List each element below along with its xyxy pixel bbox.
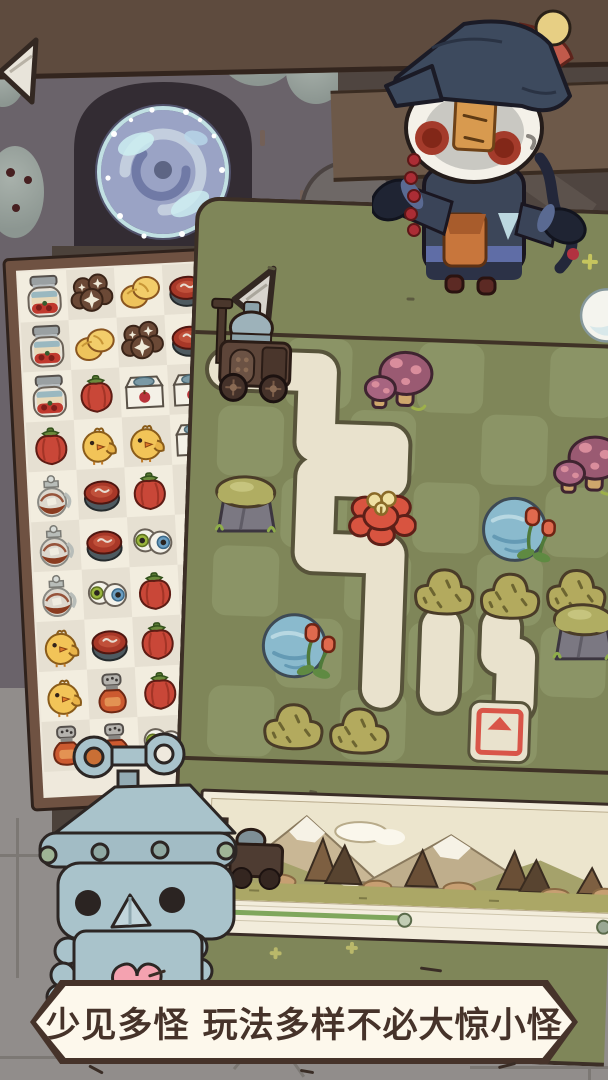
flower-prop — [346, 481, 418, 551]
bush-prop — [476, 562, 542, 618]
match3-cell-pepper[interactable] — [71, 368, 122, 420]
tractor-prop[interactable] — [207, 291, 305, 408]
level-preview-banner — [196, 789, 608, 950]
caption-text: 少见多怪 玩法多样不必大惊小怪 — [45, 997, 562, 1048]
match3-cell-buns[interactable] — [114, 265, 165, 317]
match3-cell-shaker[interactable] — [87, 667, 138, 719]
bush-prop — [259, 693, 329, 749]
match3-cell-jar[interactable] — [23, 370, 74, 422]
match3-cell-chick[interactable] — [122, 415, 173, 467]
bush-prop — [410, 558, 478, 614]
match3-cell-pepper[interactable] — [26, 420, 77, 472]
mushrooms — [552, 427, 608, 503]
match3-cell-jar[interactable] — [21, 320, 72, 372]
pond-prop — [477, 490, 559, 563]
mushrooms — [362, 342, 434, 416]
match3-cell-meat[interactable] — [79, 517, 130, 569]
match3-cell-tofu[interactable] — [119, 365, 170, 417]
target-prop[interactable] — [466, 698, 532, 766]
match3-cell-jar[interactable] — [18, 270, 69, 322]
match3-cell-jug[interactable] — [29, 470, 80, 522]
match3-cell-pepper[interactable] — [132, 615, 183, 667]
rock-prop — [548, 597, 608, 663]
match3-cell-jug[interactable] — [34, 570, 85, 622]
progress-knob[interactable] — [397, 912, 413, 928]
match3-cell-chick[interactable] — [39, 670, 90, 722]
match3-cell-pepper[interactable] — [130, 565, 181, 617]
match3-cell-chick[interactable] — [74, 417, 125, 469]
match3-cell-eyes[interactable] — [82, 567, 133, 619]
match3-cell-jug[interactable] — [31, 520, 82, 572]
match3-cell-mushrooms[interactable] — [66, 268, 117, 320]
pond-prop — [257, 606, 341, 679]
match3-cell-mushrooms[interactable] — [117, 315, 168, 367]
match3-cell-meat[interactable] — [76, 467, 127, 519]
match3-cell-buns[interactable] — [69, 318, 120, 370]
match3-cell-pepper[interactable] — [124, 465, 175, 517]
match3-cell-eyes[interactable] — [127, 515, 178, 567]
caption-banner: 少见多怪 玩法多样不必大惊小怪 — [30, 980, 578, 1064]
progress-end-knob[interactable] — [596, 919, 608, 935]
landscape-preview — [208, 798, 608, 914]
match3-cell-meat[interactable] — [84, 617, 135, 669]
paper-plane-icon — [0, 36, 42, 114]
match3-cell-chick[interactable] — [36, 620, 87, 672]
game-screenshot: 少见多怪 玩法多样不必大惊小怪 — [0, 0, 608, 1080]
jiangshi-character — [372, 8, 588, 304]
bush-prop — [325, 697, 395, 753]
rock-prop — [210, 469, 282, 541]
